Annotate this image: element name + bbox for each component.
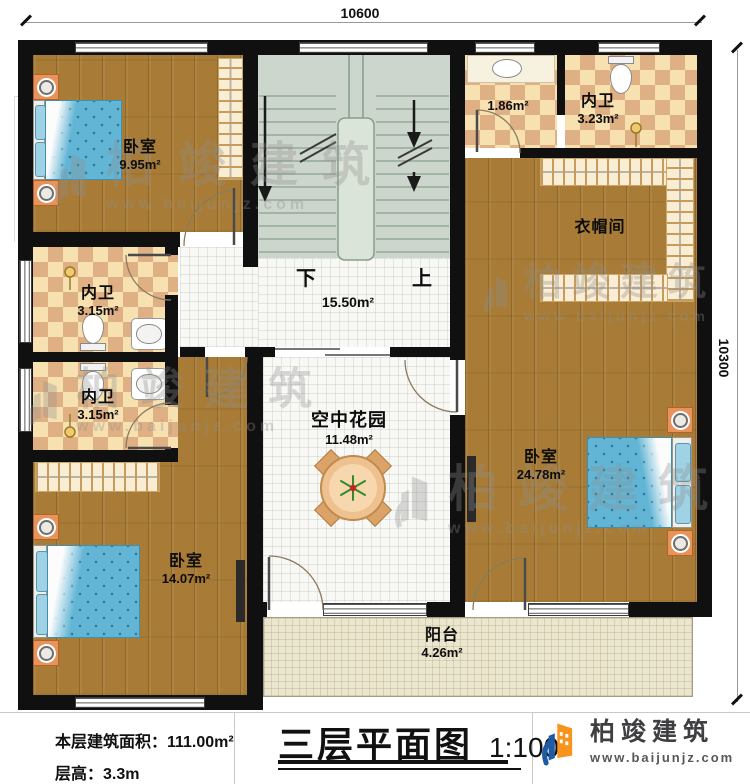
- room-area: 11.48m²: [311, 432, 387, 448]
- wardrobe: [35, 462, 160, 492]
- window: [75, 697, 205, 708]
- wardrobe: [540, 274, 668, 302]
- wall: [427, 602, 465, 617]
- bed: [33, 545, 140, 638]
- room-name: 内卫: [77, 284, 118, 303]
- room-area: 3.15m²: [77, 407, 118, 423]
- wall: [18, 450, 178, 462]
- lamp: [673, 413, 688, 428]
- lamp: [673, 536, 688, 551]
- room-name: 内卫: [577, 92, 618, 111]
- window: [19, 368, 32, 432]
- room-area: 3.15m²: [77, 303, 118, 319]
- sink: [131, 368, 167, 400]
- brand-url: www.baijunjz.com: [590, 750, 734, 765]
- dimension-right-value: 10300: [716, 328, 732, 388]
- room-area: 15.50m²: [322, 294, 374, 311]
- room-name: 空中花园: [311, 410, 387, 432]
- wall: [243, 55, 258, 267]
- nightstand: [33, 640, 59, 666]
- window: [475, 42, 535, 53]
- wall: [165, 295, 178, 405]
- wardrobe: [666, 158, 694, 302]
- wall: [180, 347, 205, 357]
- wall: [18, 352, 178, 362]
- floor-height-text: 层高：3.3m: [55, 760, 139, 784]
- wall: [245, 347, 275, 357]
- brand-logo-icon: [540, 716, 582, 768]
- round-table-top: [329, 464, 377, 512]
- room-balcony-floor: [263, 617, 693, 697]
- floor-area-text: 本层建筑面积：111.00m²: [55, 728, 234, 752]
- toilet-cistern: [608, 56, 634, 64]
- room-label-bath-top-small: 1.86m²: [487, 98, 528, 114]
- wardrobe: [218, 58, 243, 180]
- room-name: 卧室: [517, 448, 565, 467]
- bed: [587, 437, 692, 528]
- room-label-bath-mid-upper: 内卫 3.15m²: [77, 284, 118, 319]
- room-area: 1.86m²: [487, 98, 528, 114]
- lamp: [39, 80, 54, 95]
- floorplan-canvas: 10600 10300: [0, 0, 750, 784]
- dimension-line-top: [26, 22, 702, 23]
- wall: [18, 232, 180, 247]
- wall: [450, 55, 465, 360]
- construction-line: [14, 96, 15, 242]
- room-area: 3.23m²: [577, 111, 618, 127]
- window: [19, 260, 32, 343]
- pillow: [675, 485, 691, 524]
- room-label-bedroom-bottom-left: 卧室 14.07m²: [162, 552, 210, 587]
- nightstand: [33, 514, 59, 540]
- sink-basin: [136, 324, 161, 343]
- room-label-bedroom-right: 卧室 24.78m²: [517, 448, 565, 483]
- wall: [520, 148, 712, 158]
- window: [323, 603, 427, 616]
- pillow: [675, 443, 691, 482]
- wall: [697, 40, 712, 617]
- window: [299, 42, 428, 53]
- lamp: [39, 520, 54, 535]
- bed-blanket: [47, 545, 140, 638]
- room-label-cloakroom: 衣帽间: [574, 218, 625, 237]
- room-label-balcony: 阳台 4.26m²: [421, 626, 462, 661]
- title-underline: [278, 768, 521, 770]
- room-label-stair-hall: 15.50m²: [322, 294, 374, 311]
- room-area: 9.95m²: [119, 157, 160, 173]
- room-name: 阳台: [421, 626, 462, 645]
- dimension-line-right: [737, 50, 738, 702]
- wall: [247, 357, 263, 697]
- wall: [557, 55, 565, 115]
- tv: [236, 560, 245, 622]
- sliding-door: [275, 349, 390, 355]
- lamp: [39, 646, 54, 661]
- sink-basin: [136, 374, 161, 393]
- toilet-cistern: [80, 363, 106, 371]
- room-area: 24.78m²: [517, 467, 565, 483]
- room-label-bath-mid-lower: 内卫 3.15m²: [77, 388, 118, 423]
- wall: [629, 602, 712, 617]
- sink-basin: [492, 59, 522, 78]
- title-underline: [278, 760, 508, 764]
- stair-down-label: 下: [296, 262, 316, 291]
- room-area: 4.26m²: [421, 645, 462, 661]
- wall: [165, 247, 178, 255]
- room-label-bath-top-right: 内卫 3.23m²: [577, 92, 618, 127]
- wall: [450, 415, 465, 602]
- wall: [390, 347, 450, 357]
- window: [528, 603, 629, 616]
- dimension-tick: [20, 14, 32, 26]
- stair-up-label: 上: [412, 262, 432, 291]
- window: [598, 42, 660, 53]
- room-name: 衣帽间: [574, 218, 625, 237]
- nightstand: [667, 407, 693, 433]
- room-name: 卧室: [119, 138, 160, 157]
- nightstand: [33, 180, 59, 206]
- nightstand: [33, 74, 59, 100]
- room-label-bedroom-top-left: 卧室 9.95m²: [119, 138, 160, 173]
- wall: [247, 602, 267, 617]
- room-name: 内卫: [77, 388, 118, 407]
- wardrobe: [540, 158, 668, 186]
- stairwell-floor: [258, 55, 450, 258]
- room-name: 卧室: [162, 552, 210, 571]
- window: [75, 42, 208, 53]
- bed-blanket: [45, 100, 122, 180]
- room-label-sky-garden: 空中花园 11.48m²: [311, 410, 387, 447]
- brand-name: 柏竣建筑: [590, 720, 734, 745]
- footer-divider: [0, 712, 750, 713]
- dimension-top-value: 10600: [330, 5, 390, 21]
- bed-blanket: [587, 437, 672, 528]
- sink: [131, 318, 167, 350]
- tv: [467, 456, 476, 522]
- brand-logo: 柏竣建筑 www.baijunjz.com: [540, 716, 734, 768]
- dimension-tick: [694, 14, 706, 26]
- room-area: 14.07m²: [162, 571, 210, 587]
- lamp: [39, 186, 54, 201]
- nightstand: [667, 530, 693, 556]
- footer-divider: [234, 712, 235, 784]
- toilet-cistern: [80, 343, 106, 351]
- bed: [33, 100, 122, 180]
